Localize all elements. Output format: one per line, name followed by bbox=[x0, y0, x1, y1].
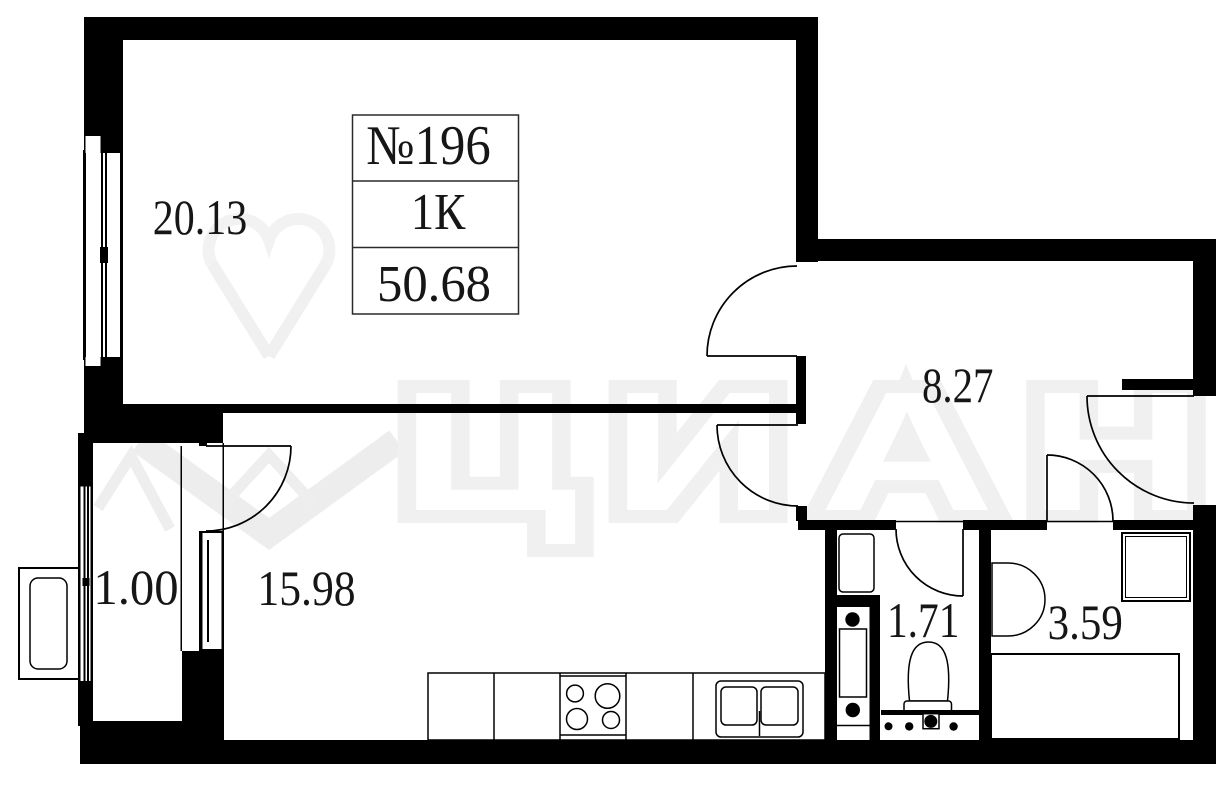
svg-text:8.27: 8.27 bbox=[922, 357, 993, 413]
svg-text:1.71: 1.71 bbox=[887, 592, 959, 648]
svg-text:50.68: 50.68 bbox=[377, 255, 491, 313]
svg-text:15.98: 15.98 bbox=[257, 561, 355, 616]
svg-text:ЦИАН: ЦИАН bbox=[400, 357, 1216, 546]
svg-text:20.13: 20.13 bbox=[153, 190, 247, 245]
svg-text:3.59: 3.59 bbox=[1048, 595, 1123, 651]
svg-text:№196: №196 bbox=[366, 114, 490, 177]
svg-text:1.00: 1.00 bbox=[93, 559, 178, 615]
svg-text:1К: 1К bbox=[411, 183, 467, 241]
